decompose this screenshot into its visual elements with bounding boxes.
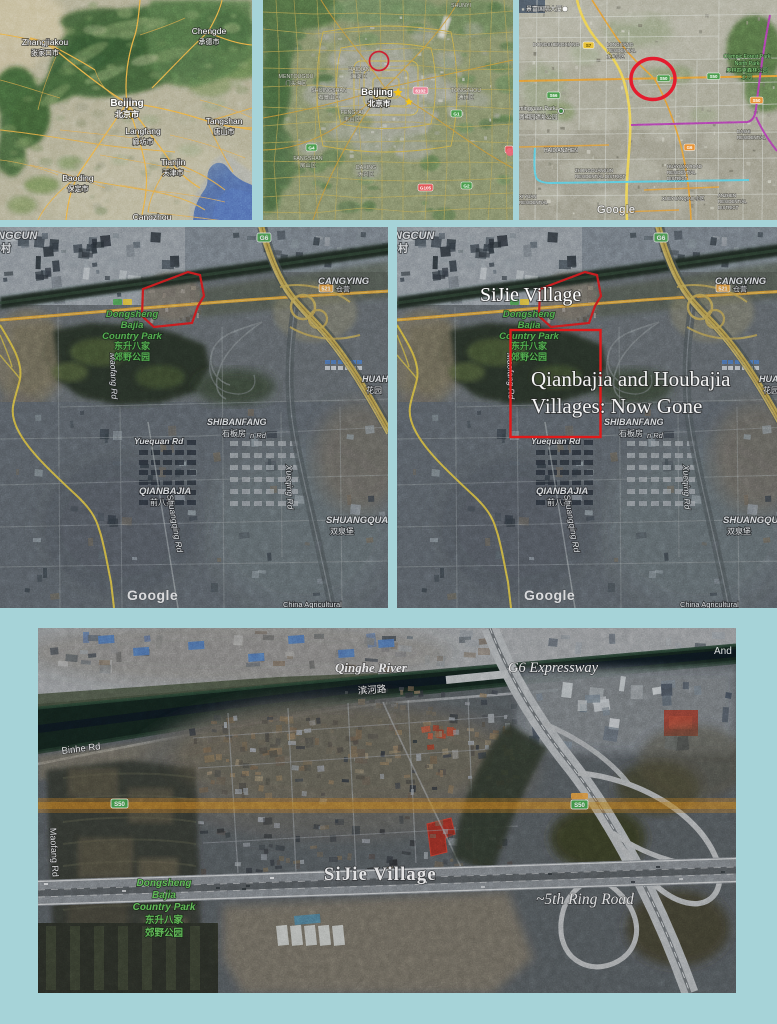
svg-text:大兴区: 大兴区 — [358, 170, 375, 178]
svg-text:Cangzhou: Cangzhou — [133, 212, 172, 220]
svg-text:6102: 6102 — [415, 89, 426, 94]
svg-text:HAIDIAN: HAIDIAN — [348, 67, 370, 73]
svg-text:FANGSHAN: FANGSHAN — [293, 156, 322, 162]
svg-text:MENTOUGOU: MENTOUGOU — [279, 74, 314, 80]
svg-text:S50: S50 — [753, 98, 761, 103]
svg-text:Tianjin: Tianjin — [161, 157, 186, 167]
svg-text:XI YUAN: XI YUAN — [519, 194, 537, 199]
svg-text:北京市: 北京市 — [115, 109, 139, 119]
svg-text:Beijing: Beijing — [110, 98, 143, 109]
svg-text:保定市: 保定市 — [68, 184, 89, 193]
svg-text:Tangshan: Tangshan — [206, 116, 243, 126]
svg-text:S66: S66 — [550, 93, 558, 98]
svg-text:HAIDIANZHEN: HAIDIANZHEN — [544, 148, 578, 154]
svg-text:Zhangjiakou: Zhangjiakou — [22, 37, 69, 47]
svg-text:G4: G4 — [308, 146, 315, 151]
svg-text:RESIDENTIAL: RESIDENTIAL — [737, 135, 766, 140]
svg-text:G105: G105 — [420, 186, 432, 191]
svg-text:Villages: Now Gone: Villages: Now Gone — [531, 394, 702, 418]
svg-text:北园: 北园 — [742, 73, 752, 81]
svg-text:Google: Google — [597, 204, 635, 216]
svg-text:龙乡小区: 龙乡小区 — [607, 53, 625, 60]
svg-text:G1: G1 — [453, 112, 460, 117]
svg-text:SHUNYI: SHUNYI — [451, 3, 471, 9]
svg-text:景富国际大厦: 景富国际大厦 — [526, 5, 562, 13]
svg-text:S50: S50 — [710, 74, 718, 79]
svg-text:TONGZHOU: TONGZHOU — [451, 88, 481, 94]
svg-text:Langfang: Langfang — [125, 126, 161, 136]
svg-text:Baoding: Baoding — [62, 173, 93, 183]
svg-text:DONGSHENGXIANG: DONGSHENGXIANG — [533, 42, 580, 48]
svg-text:LONGXIANG: LONGXIANG — [607, 42, 634, 47]
svg-text:门头沟区: 门头沟区 — [285, 79, 307, 87]
svg-text:G6: G6 — [687, 145, 693, 150]
svg-text:天津市: 天津市 — [163, 168, 184, 177]
svg-text:DISTRICT: DISTRICT — [667, 176, 688, 181]
svg-text:张家口市: 张家口市 — [31, 48, 59, 57]
svg-text:ANZHEN: ANZHEN — [718, 193, 736, 198]
svg-text:SiJie Village: SiJie Village — [480, 284, 581, 306]
svg-text:丰台区: 丰台区 — [344, 115, 361, 123]
svg-text:海淀区: 海淀区 — [351, 72, 368, 80]
svg-text:ZHONGGUANCUN: ZHONGGUANCUN — [575, 168, 613, 173]
svg-text:SHIJINGSHAN: SHIJINGSHAN — [311, 88, 347, 94]
svg-text:HUAYUAN ROAD: HUAYUAN ROAD — [667, 164, 702, 169]
svg-text:廊坊市: 廊坊市 — [133, 137, 154, 146]
svg-text:Olympic Forest Park: Olympic Forest Park — [724, 54, 771, 60]
svg-text:奥林匹克森林公园: 奥林匹克森林公园 — [726, 66, 768, 74]
svg-text:RESIDENTIAL: RESIDENTIAL — [607, 48, 636, 53]
svg-text:石景山区: 石景山区 — [318, 93, 340, 101]
svg-text:S50: S50 — [660, 76, 668, 81]
svg-text:Beijing: Beijing — [361, 87, 393, 98]
svg-text:RESIDENTIAL: RESIDENTIAL — [667, 170, 696, 175]
svg-text:北京市: 北京市 — [368, 98, 391, 108]
svg-text:DAXING: DAXING — [356, 165, 376, 171]
svg-text:North Park: North Park — [735, 61, 760, 67]
svg-text:唐山市: 唐山市 — [214, 127, 235, 136]
svg-text:RESIDENTIAL: RESIDENTIAL — [519, 200, 548, 205]
svg-text:RESIDENTIAL DISTRICT: RESIDENTIAL DISTRICT — [575, 174, 625, 179]
svg-text:G2: G2 — [463, 184, 470, 189]
svg-text:FENGTAI: FENGTAI — [341, 110, 364, 116]
svg-text:S7: S7 — [586, 43, 592, 48]
svg-text:XUEYUANQIAO 小区: XUEYUANQIAO 小区 — [662, 195, 705, 202]
svg-text:房山区: 房山区 — [300, 161, 317, 169]
svg-text:mingyuan Park: mingyuan Park — [519, 106, 556, 112]
svg-text:Qianbajia and Houbajia: Qianbajia and Houbajia — [531, 367, 731, 391]
svg-text:DASHI: DASHI — [737, 129, 750, 134]
svg-text:通州区: 通州区 — [458, 93, 475, 101]
svg-text:RESIDENTIAL: RESIDENTIAL — [718, 199, 747, 204]
svg-text:DISTRICT: DISTRICT — [718, 205, 739, 210]
svg-text:Chengde: Chengde — [192, 26, 227, 36]
svg-text:承德市: 承德市 — [199, 37, 220, 46]
svg-text:圆明园遗址公园: 圆明园遗址公园 — [519, 113, 558, 121]
